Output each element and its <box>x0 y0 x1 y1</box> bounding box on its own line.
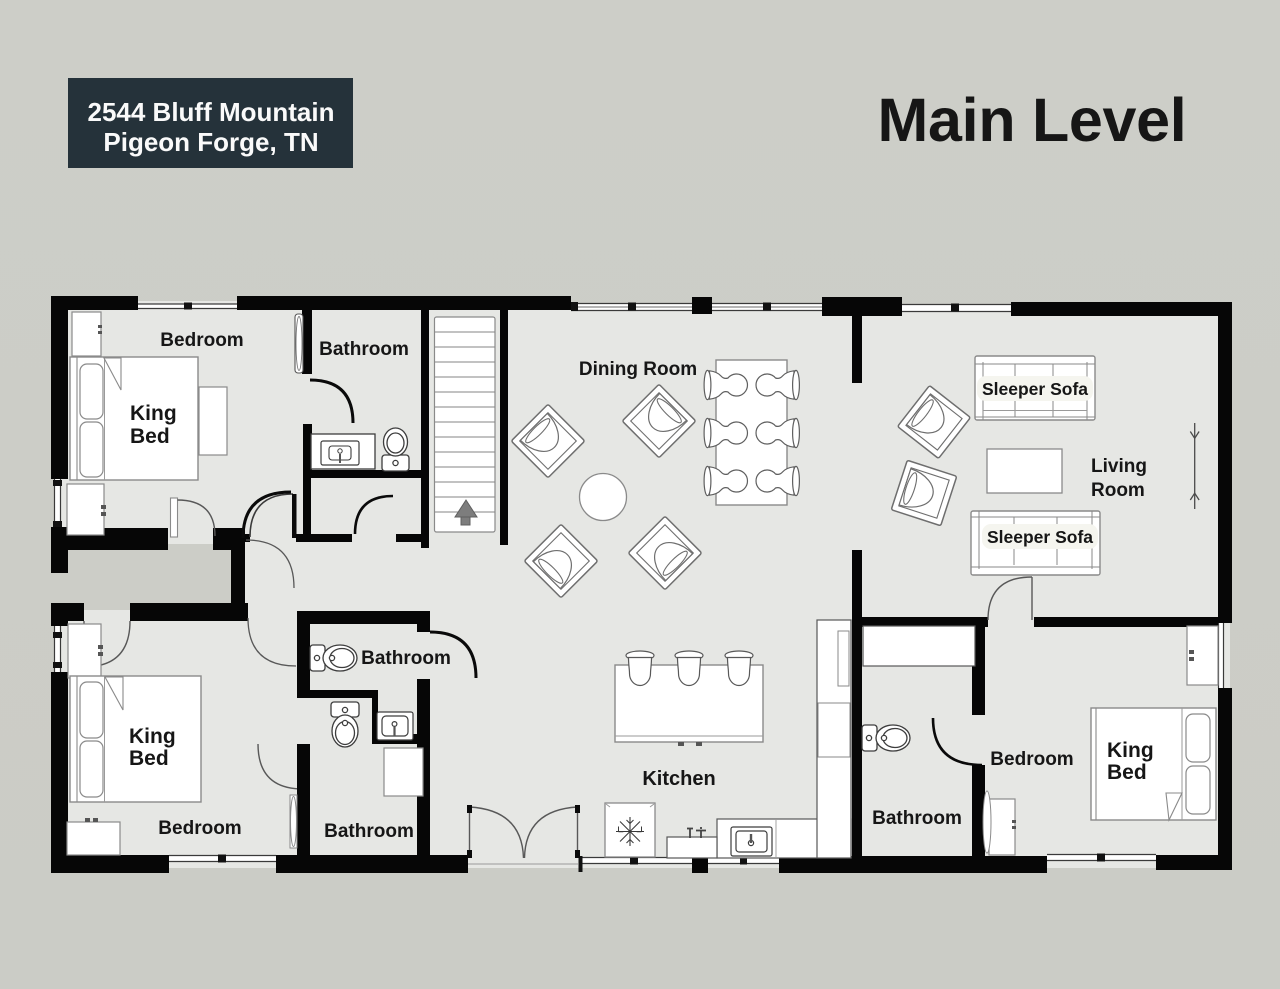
svg-text:Bed: Bed <box>130 425 170 448</box>
svg-text:Bedroom: Bedroom <box>158 818 241 839</box>
svg-text:Room: Room <box>1091 480 1145 501</box>
svg-text:Bed: Bed <box>1107 761 1147 784</box>
svg-text:Bathroom: Bathroom <box>324 821 414 842</box>
svg-text:King: King <box>129 725 176 748</box>
svg-text:Bathroom: Bathroom <box>319 339 409 360</box>
svg-text:King: King <box>130 402 177 425</box>
svg-text:Main Level: Main Level <box>878 86 1187 154</box>
svg-text:King: King <box>1107 739 1154 762</box>
svg-text:2544 Bluff Mountain: 2544 Bluff Mountain <box>87 97 334 127</box>
svg-text:Bathroom: Bathroom <box>361 648 451 669</box>
svg-text:Bed: Bed <box>129 747 169 770</box>
svg-text:Sleeper Sofa: Sleeper Sofa <box>987 527 1093 547</box>
svg-text:Bedroom: Bedroom <box>160 330 243 351</box>
svg-text:Kitchen: Kitchen <box>642 768 715 790</box>
svg-text:Living: Living <box>1091 456 1147 477</box>
svg-text:Bathroom: Bathroom <box>872 808 962 829</box>
svg-text:Sleeper Sofa: Sleeper Sofa <box>982 379 1088 399</box>
svg-text:Bedroom: Bedroom <box>990 749 1073 770</box>
svg-text:Dining Room: Dining Room <box>579 359 697 380</box>
svg-text:Pigeon Forge, TN: Pigeon Forge, TN <box>103 127 318 157</box>
